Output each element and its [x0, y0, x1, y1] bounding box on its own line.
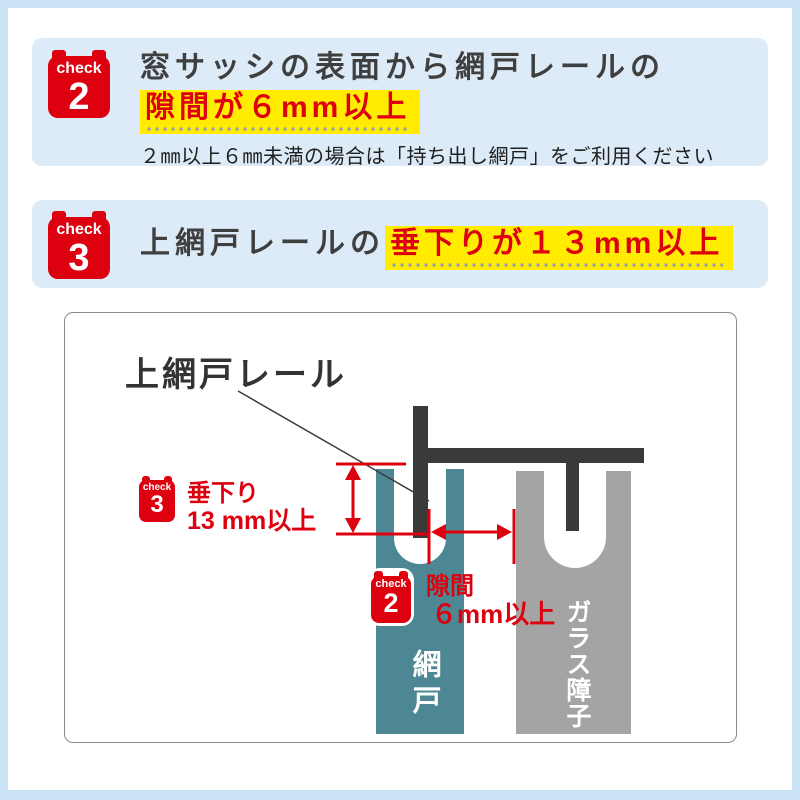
gap-badge-icon: check 2: [371, 571, 411, 623]
check2-panel: check 2 窓サッシの表面から網戸レールの 隙間が６mm以上 ２㎜以上６㎜未…: [32, 38, 768, 166]
check2-title-line1: 窓サッシの表面から網戸レールの: [140, 48, 714, 88]
check2-text-block: 窓サッシの表面から網戸レールの 隙間が６mm以上 ２㎜以上６㎜未満の場合は「持ち…: [140, 48, 714, 169]
badge-body: check 2: [371, 576, 411, 623]
dotted-underline: [390, 262, 723, 268]
badge-word: check: [56, 61, 101, 77]
check2-note: ２㎜以上６㎜未満の場合は「持ち出し網戸」をご利用ください: [140, 140, 714, 169]
badge-body: check 3: [139, 480, 175, 522]
diagram-panel: 上網戸レール check 3 垂下り 13 mm以上 check 2 隙間 ６m…: [64, 312, 737, 743]
screen-door-label: 網戸: [403, 649, 445, 721]
badge-number: 3: [68, 239, 89, 277]
drop-arrow-head-down: [345, 518, 361, 533]
drop-arrow-head-up: [345, 465, 361, 480]
gap-arrow-head-right: [497, 524, 512, 540]
rail-label: 上網戸レール: [125, 347, 347, 396]
rail-label-leader-line: [238, 391, 429, 501]
infographic-root: check 2 窓サッシの表面から網戸レールの 隙間が６mm以上 ２㎜以上６㎜未…: [0, 0, 800, 800]
check2-highlight: 隙間が６mm以上: [140, 90, 420, 134]
check3-badge-icon: check 3: [48, 211, 110, 279]
check3-panel: check 3 上網戸レールの 垂下りが１３mm以上: [32, 200, 768, 288]
badge-number: 2: [68, 78, 89, 116]
check2-highlight-text: 隙間が６mm以上: [145, 91, 410, 124]
glass-shoji-label: ガラス障子: [559, 599, 595, 729]
check3-highlight: 垂下りが１３mm以上: [385, 226, 733, 270]
drop-badge-icon: check 3: [139, 476, 175, 522]
gap-arrow-head-left: [431, 524, 446, 540]
check3-title: 上網戸レールの 垂下りが１３mm以上: [140, 224, 733, 270]
badge-body: check 2: [48, 56, 110, 118]
check2-badge-icon: check 2: [48, 50, 110, 118]
badge-word: check: [56, 222, 101, 238]
dotted-underline: [145, 126, 410, 132]
badge-number: 3: [150, 493, 163, 517]
gap-measure-label-line2: ６mm以上: [431, 594, 555, 631]
check3-title-plain: 上網戸レールの: [140, 227, 385, 260]
drop-measure-label-line2: 13 mm以上: [187, 501, 316, 537]
check3-highlight-text: 垂下りが１３mm以上: [390, 227, 723, 260]
badge-body: check 3: [48, 217, 110, 279]
badge-number: 2: [383, 590, 398, 617]
